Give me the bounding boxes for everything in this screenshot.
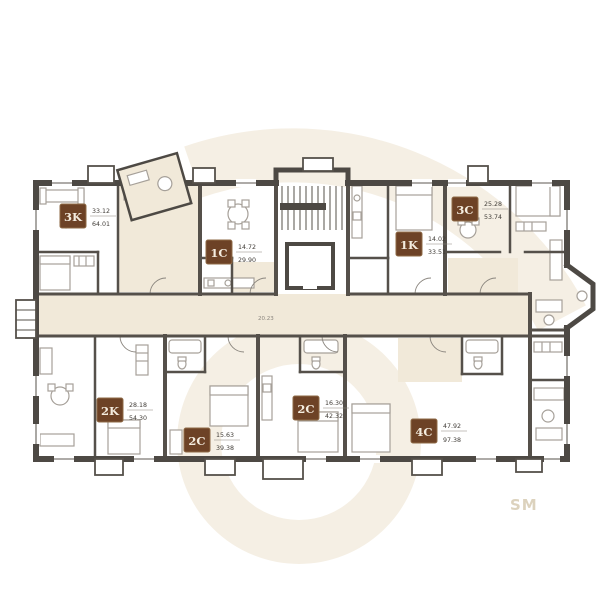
unit-code: 2K <box>101 404 120 418</box>
dining-table <box>48 384 73 405</box>
balcony <box>205 459 235 475</box>
balcony <box>193 168 215 183</box>
total-area: 97.38 <box>443 437 461 444</box>
total-area: 53.74 <box>484 214 502 221</box>
desk <box>536 428 562 440</box>
total-area: 64.01 <box>92 221 110 228</box>
staircase <box>280 186 342 230</box>
chair <box>542 410 554 422</box>
bathtub <box>169 340 201 353</box>
wardrobe <box>534 342 562 352</box>
wardrobe <box>136 345 148 375</box>
balcony <box>95 459 123 475</box>
bathtub <box>466 340 498 353</box>
plant <box>577 291 587 301</box>
floorplan-page: SM 20.23 <box>0 0 600 600</box>
bed <box>352 404 390 452</box>
kitchen-counter <box>204 278 254 288</box>
bed <box>210 386 248 426</box>
unit-code: 2C <box>188 434 205 448</box>
living-area: 16.30 <box>325 400 343 407</box>
kitchen-counter <box>352 186 362 238</box>
desk <box>536 300 562 312</box>
unit-code: 4C <box>415 425 432 439</box>
kitchen-counter <box>262 376 272 420</box>
balcony <box>516 459 542 472</box>
unit-code: 2C <box>297 402 314 416</box>
unit-code: 3C <box>456 203 473 217</box>
dining-table <box>228 200 249 229</box>
living-area: 47.92 <box>443 423 461 430</box>
unit-badge-1k[interactable]: 1K 14.02 33.51 <box>396 232 452 256</box>
living-area: 28.18 <box>129 402 147 409</box>
unit-badge-1c[interactable]: 1C 14.72 29.90 <box>206 240 262 264</box>
sofa <box>40 434 74 446</box>
desk <box>170 430 182 454</box>
wardrobe <box>516 222 546 231</box>
balcony <box>263 459 303 479</box>
living-area: 14.72 <box>238 244 256 251</box>
living-area: 25.28 <box>484 201 502 208</box>
balcony <box>88 166 114 183</box>
total-area: 42.32 <box>325 413 343 420</box>
balcony <box>412 459 442 475</box>
total-area: 39.38 <box>216 445 234 452</box>
living-area: 15.63 <box>216 432 234 439</box>
unit-code: 1K <box>400 238 419 252</box>
chair <box>544 315 554 325</box>
floorplan-canvas: SM 20.23 <box>0 0 600 600</box>
sofa <box>550 240 562 280</box>
living-area: 14.02 <box>428 236 446 243</box>
bed <box>108 420 140 454</box>
corridor-area-label: 20.23 <box>258 316 274 322</box>
bed <box>396 186 432 230</box>
elevator <box>287 244 333 289</box>
desk <box>40 348 52 374</box>
watermark-sm-text: SM <box>510 496 538 514</box>
unit-code: 3K <box>64 210 83 224</box>
toilet <box>474 357 482 369</box>
bed <box>40 256 70 290</box>
balcony <box>303 158 333 171</box>
toilet <box>178 357 186 369</box>
unit-badge-2k[interactable]: 2K 28.18 54.30 <box>97 398 153 422</box>
bed <box>516 186 560 216</box>
toilet <box>312 357 320 369</box>
wardrobe <box>74 256 94 266</box>
total-area: 33.51 <box>428 249 446 256</box>
unit-badge-4c[interactable]: 4C 47.92 97.38 <box>411 419 467 444</box>
unit-badge-3k[interactable]: 3K 33.12 64.01 <box>60 204 116 228</box>
total-area: 29.90 <box>238 257 256 264</box>
balcony <box>468 166 488 183</box>
total-area: 54.30 <box>129 415 147 422</box>
balcony <box>16 300 36 338</box>
sofa <box>40 188 84 204</box>
unit-code: 1C <box>210 246 227 260</box>
living-area: 33.12 <box>92 208 110 215</box>
sofa <box>534 388 564 400</box>
